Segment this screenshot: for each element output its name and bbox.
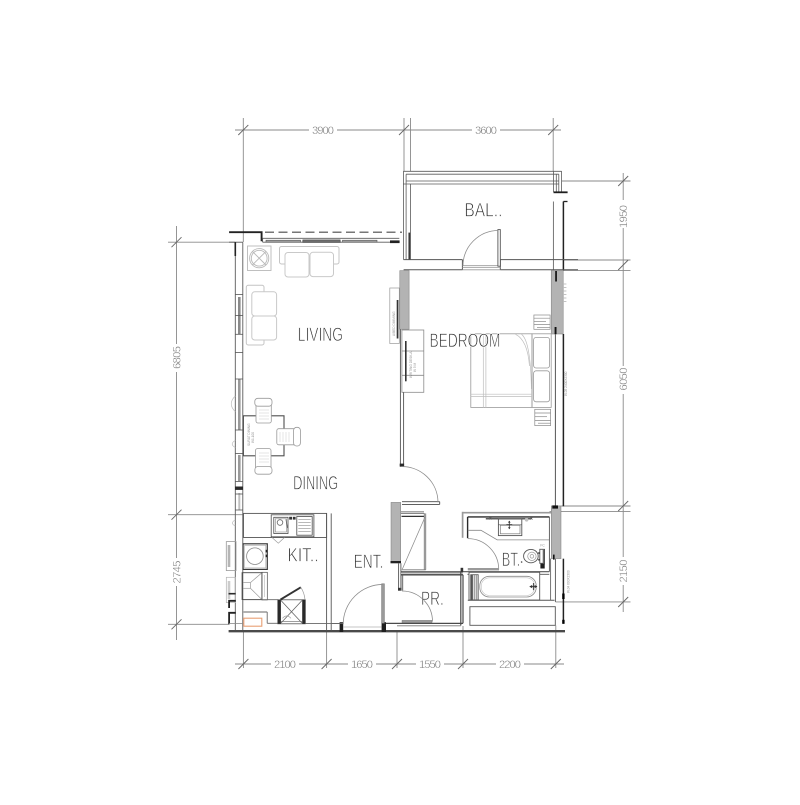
svg-text:A/BED DIMMING: A/BED DIMMING bbox=[392, 311, 396, 336]
svg-text:2200: 2200 bbox=[499, 659, 521, 671]
svg-text:W.05 2400X2300: W.05 2400X2300 bbox=[564, 371, 568, 396]
svg-text:FC: FC bbox=[540, 544, 545, 548]
svg-text:3600: 3600 bbox=[475, 125, 497, 137]
svg-text:6805: 6805 bbox=[172, 346, 184, 369]
svg-text:6050: 6050 bbox=[618, 368, 630, 391]
svg-text:W1.100: W1.100 bbox=[251, 432, 255, 443]
svg-text:2150: 2150 bbox=[618, 560, 630, 583]
svg-text:ENT.: ENT. bbox=[354, 551, 384, 573]
svg-text:BT.: BT. bbox=[502, 549, 521, 571]
svg-text:KIT..: KIT.. bbox=[288, 544, 319, 566]
svg-text:DINING: DINING bbox=[293, 472, 338, 494]
svg-text:LIVING: LIVING bbox=[298, 324, 343, 346]
svg-text:2100: 2100 bbox=[274, 659, 296, 671]
svg-text:1550: 1550 bbox=[419, 659, 441, 671]
svg-text:BAL..: BAL.. bbox=[464, 200, 502, 222]
svg-text:BEDROOM: BEDROOM bbox=[430, 330, 501, 352]
svg-text:W 5 M: W 5 M bbox=[413, 362, 417, 372]
svg-text:3900: 3900 bbox=[312, 125, 334, 137]
svg-text:PR.: PR. bbox=[421, 588, 444, 610]
svg-text:1950: 1950 bbox=[618, 205, 630, 228]
svg-text:2745: 2745 bbox=[172, 561, 184, 584]
svg-text:W.04 600X2300: W.04 600X2300 bbox=[567, 570, 571, 593]
svg-text:1650: 1650 bbox=[351, 659, 373, 671]
